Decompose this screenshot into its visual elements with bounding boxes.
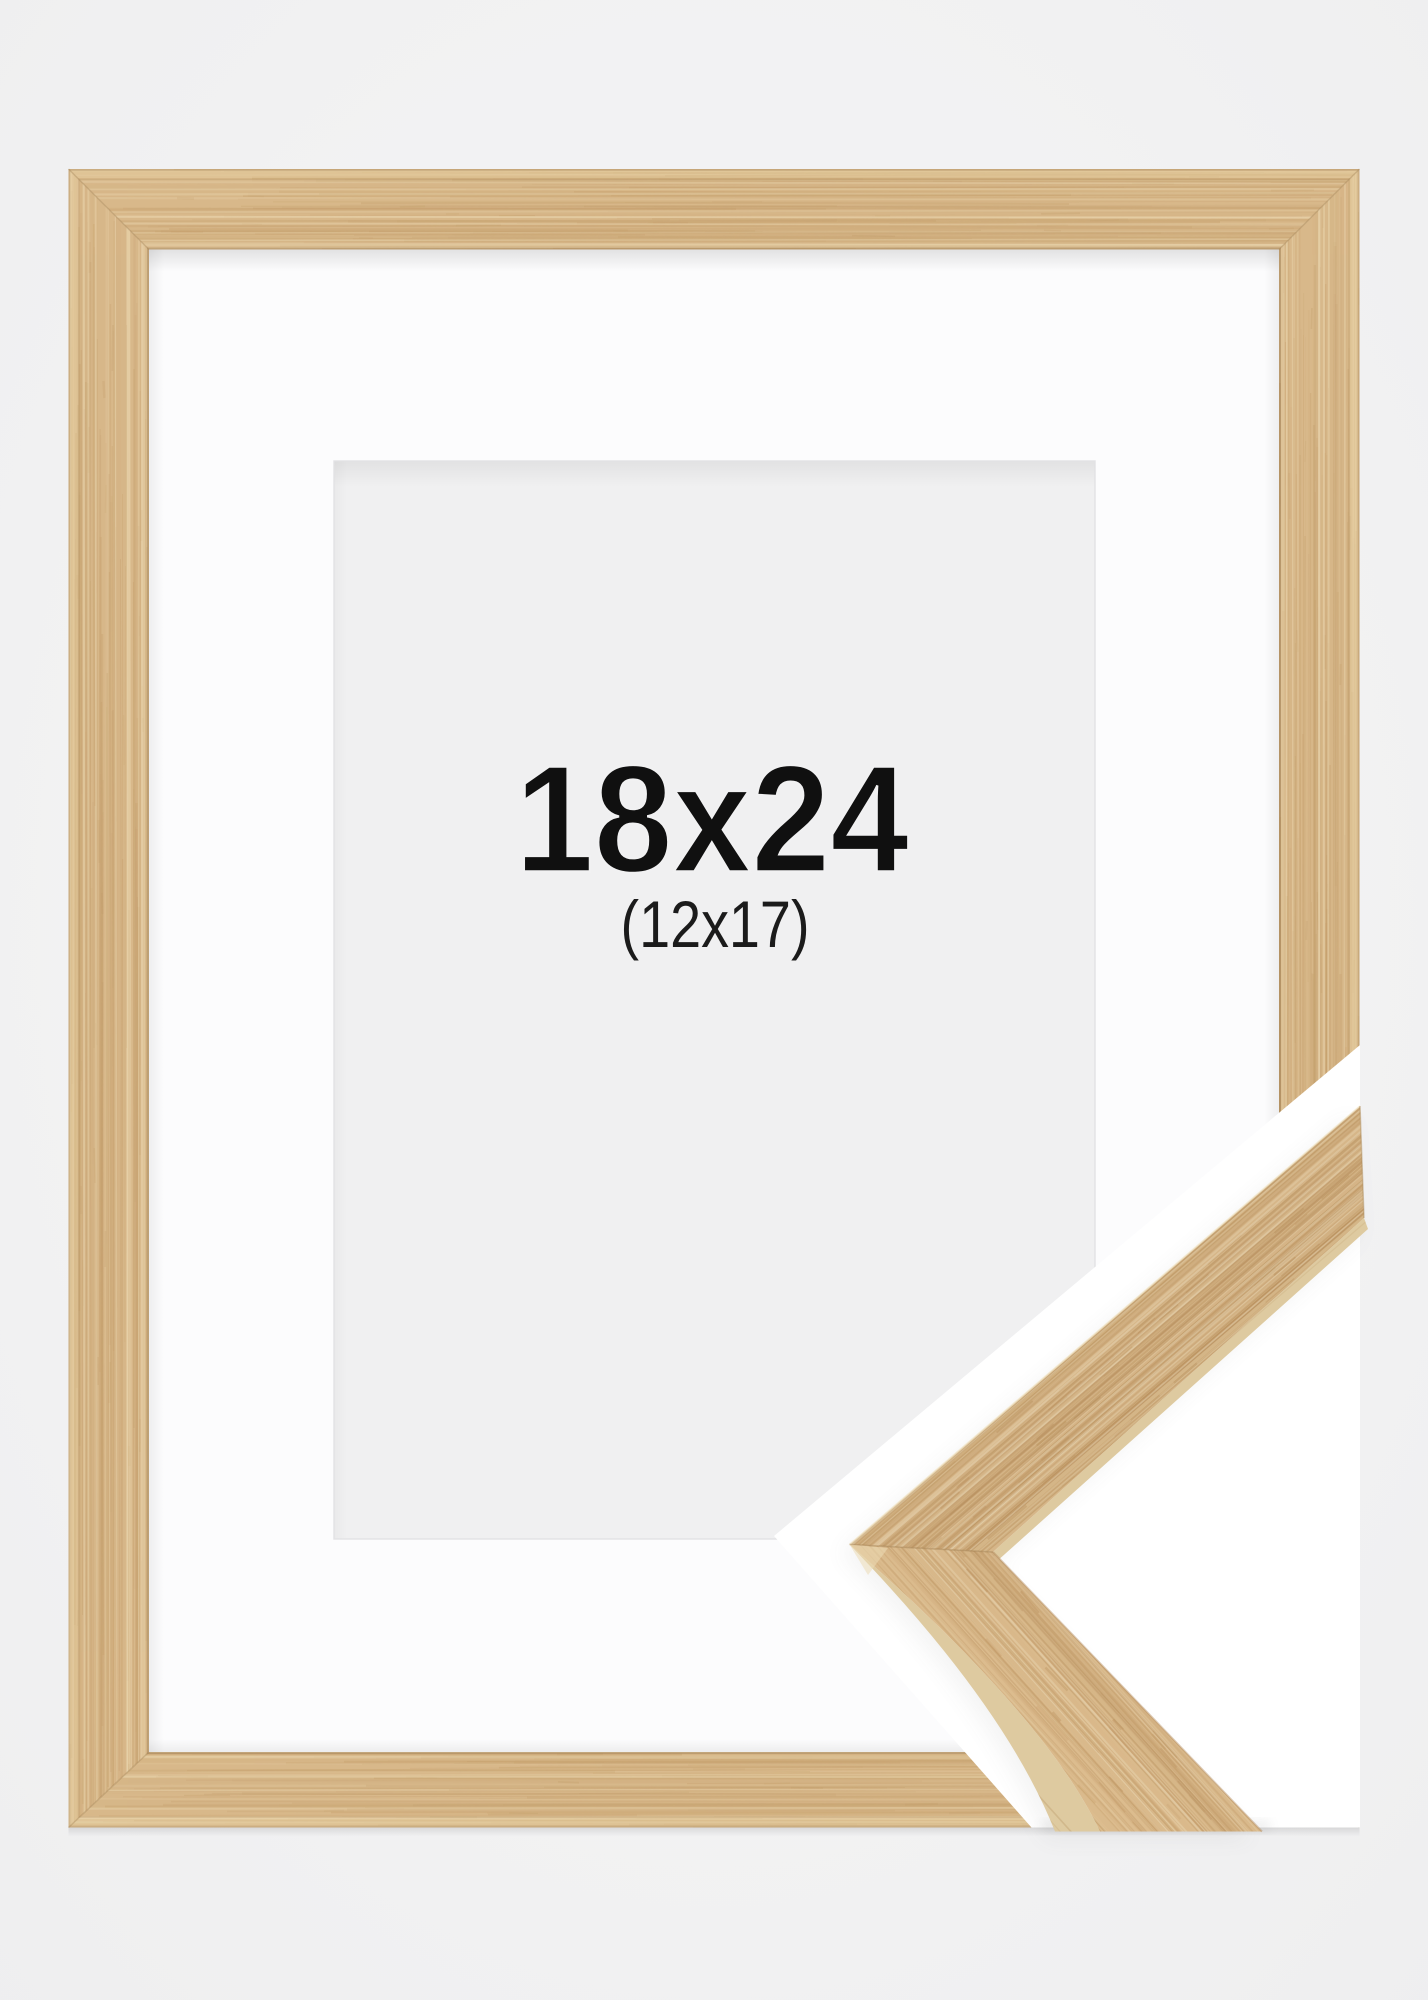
svg-text:(12x17): (12x17) bbox=[621, 887, 810, 961]
svg-text:18x24: 18x24 bbox=[515, 735, 909, 905]
